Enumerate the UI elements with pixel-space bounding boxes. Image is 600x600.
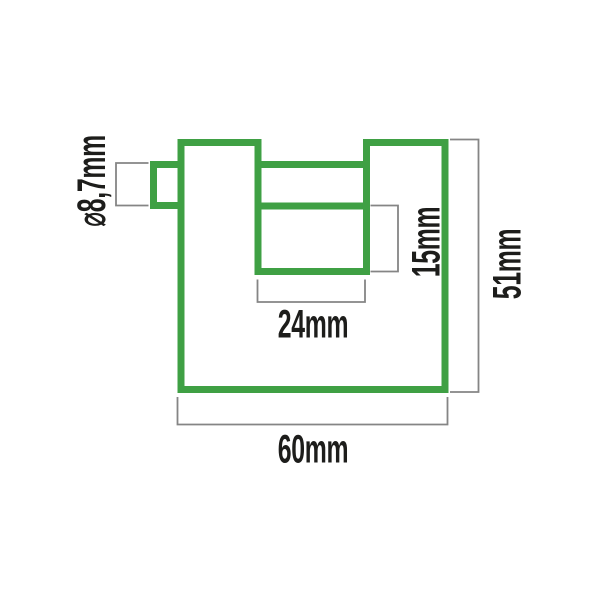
dimension-label-shackle-diameter: ⌀8,7mm xyxy=(69,135,115,227)
dim-bracket-body-height xyxy=(450,140,479,393)
dimension-label-body-width: 60mm xyxy=(278,428,348,473)
dimension-label-opening-height: 15mm xyxy=(405,207,450,277)
dim-bracket-body-width xyxy=(178,397,448,425)
dimension-label-body-height: 51mm xyxy=(486,229,531,299)
dim-bracket-opening-width xyxy=(258,280,366,303)
dim-bracket-shackle-diameter xyxy=(116,163,149,206)
dimension-drawing-canvas: ⌀8,7mm 15mm 24mm 51mm 60mm xyxy=(0,0,600,600)
dim-bracket-opening-height xyxy=(371,206,399,272)
dimension-label-opening-width: 24mm xyxy=(278,303,348,348)
shackle-pin-left-end xyxy=(154,165,182,206)
lock-dimension-drawing xyxy=(0,0,600,600)
